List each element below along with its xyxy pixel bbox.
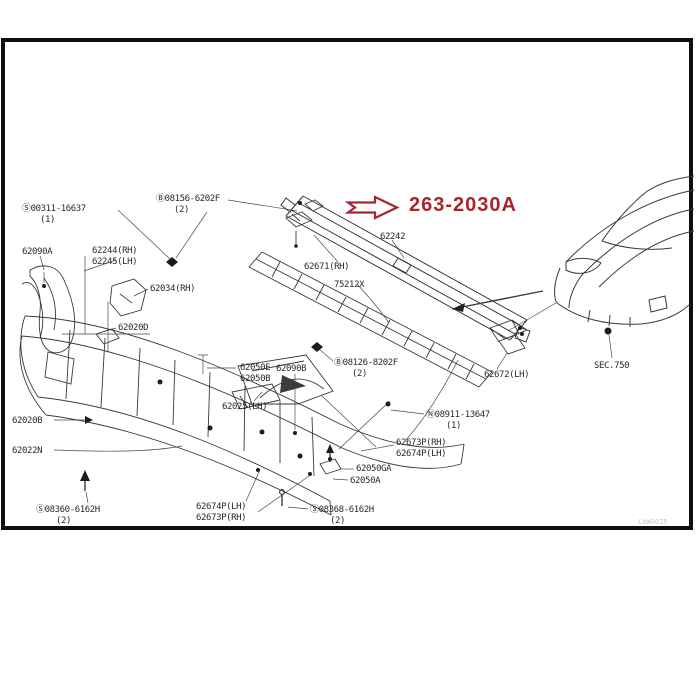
part-label: SEC.750	[594, 361, 629, 371]
parts-diagram-canvas: Ⓢ00311-16637(1)Ⓑ08156-6202F(2)62090A6224…	[0, 0, 700, 700]
diagram-reference-code: LbWA025	[638, 518, 668, 526]
part-label: 62245(LH)	[92, 257, 137, 267]
bumper-fascia	[20, 316, 464, 515]
part-label: 62673P(RH)	[196, 513, 246, 523]
part-label: 62034(RH)	[150, 284, 195, 294]
part-label: (2)	[56, 516, 71, 526]
diagram-line-art	[0, 0, 700, 700]
side-retainer-brackets	[22, 266, 146, 353]
part-label: 62673P(RH)	[396, 438, 446, 448]
part-label: 62050B	[240, 374, 270, 384]
part-label: Ⓝ08911-13647	[426, 410, 490, 420]
part-label: (1)	[40, 215, 55, 225]
part-label: Ⓢ08360-6162H	[36, 505, 100, 515]
part-label: Ⓑ08156-6202F	[156, 194, 220, 204]
bumper-stay-lh	[490, 320, 527, 354]
part-label: 62050GA	[356, 464, 391, 474]
part-label: 62671(RH)	[304, 262, 349, 272]
part-label: 62020D	[118, 323, 148, 333]
highlighted-part-number: 263-2030A	[409, 194, 517, 216]
part-label: 62022N	[12, 446, 42, 456]
part-label: 62674P(LH)	[196, 502, 246, 512]
part-label: (2)	[330, 516, 345, 526]
part-label: 75212X	[334, 280, 364, 290]
highlight-arrow-icon	[348, 197, 397, 218]
part-label: 62672(LH)	[484, 370, 529, 380]
part-label: Ⓑ08126-8202F	[334, 358, 398, 368]
part-label: 62244(RH)	[92, 246, 137, 256]
part-label: 62020B	[12, 416, 42, 426]
part-label: Ⓢ08368-6162H	[310, 505, 374, 515]
part-label: (2)	[174, 205, 189, 215]
part-label: Ⓢ00311-16637	[22, 204, 86, 214]
part-label: (2)	[352, 369, 367, 379]
part-label: (1)	[446, 421, 461, 431]
part-label: 62050A	[350, 476, 380, 486]
part-label: 62090A	[22, 247, 52, 257]
part-label: 62025(LH)	[222, 402, 267, 412]
part-label: 62674P(LH)	[396, 449, 446, 459]
part-label: 62090B	[276, 364, 306, 374]
part-label: 62242	[380, 232, 405, 242]
part-label: 62050E	[240, 363, 270, 373]
